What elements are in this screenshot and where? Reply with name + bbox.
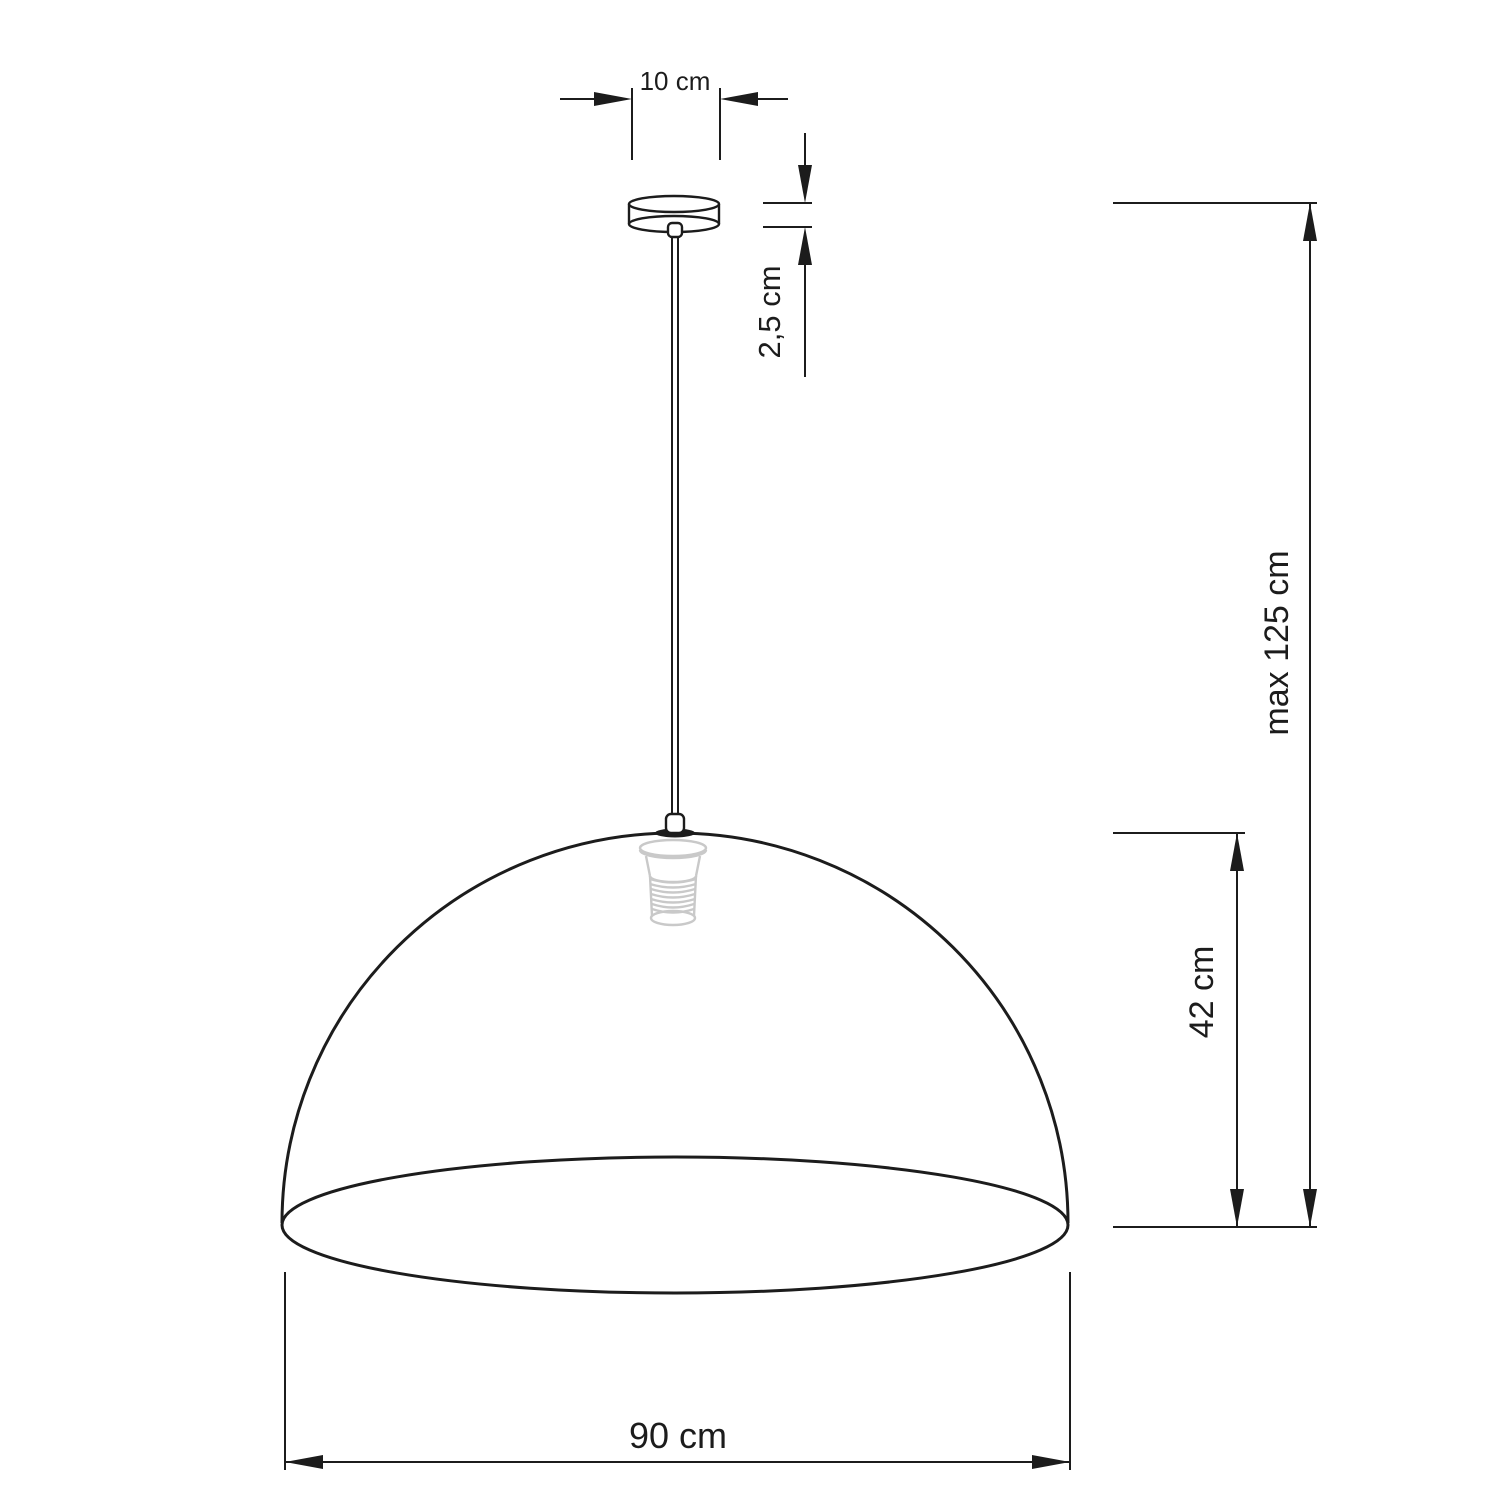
cable-fitting — [655, 814, 695, 838]
socket-neck-left — [646, 856, 650, 876]
arrowhead-up-icon — [1230, 833, 1244, 871]
max-height-label: max 125 cm — [1258, 550, 1296, 735]
strain-relief — [666, 814, 684, 833]
canopy-height-label: 2,5 cm — [752, 265, 787, 358]
drawing-canvas: 10 cm 2,5 cm max 125 cm 42 cm 90 cm — [0, 0, 1500, 1500]
canopy-cable-grip — [668, 223, 682, 237]
shade-rim-ellipse — [282, 1157, 1068, 1293]
canopy-top-ellipse — [629, 196, 719, 212]
dimension-canopy-height: 2,5 cm — [752, 133, 812, 377]
lamp-socket — [640, 840, 706, 925]
socket-thread — [652, 904, 694, 908]
dimension-max-height: max 125 cm — [1113, 203, 1317, 1227]
socket-thread — [650, 884, 696, 888]
socket-thread — [651, 899, 695, 903]
arrowhead-left-icon — [285, 1455, 323, 1469]
canopy-width-label: 10 cm — [640, 66, 711, 96]
shade-height-label: 42 cm — [1183, 946, 1221, 1039]
suspension-cable — [672, 237, 678, 816]
socket-neck-right — [696, 856, 700, 876]
socket-thread — [651, 894, 695, 898]
dimension-shade-diameter: 90 cm — [285, 1272, 1070, 1470]
arrowhead-down-icon — [1303, 1189, 1317, 1227]
arrowhead-down-icon — [1230, 1189, 1244, 1227]
socket-flange-top — [640, 840, 706, 856]
lamp-dimension-drawing: 10 cm 2,5 cm max 125 cm 42 cm 90 cm — [0, 0, 1500, 1500]
shade-diameter-label: 90 cm — [629, 1415, 727, 1456]
arrowhead-right-icon — [594, 92, 632, 106]
dimension-shade-height: 42 cm — [1113, 833, 1245, 1227]
ceiling-canopy — [629, 196, 719, 237]
arrowhead-left-icon — [720, 92, 758, 106]
arrowhead-right-icon — [1032, 1455, 1070, 1469]
socket-thread — [651, 889, 695, 893]
arrowhead-up-icon — [798, 227, 812, 265]
arrowhead-down-icon — [798, 165, 812, 203]
arrowhead-up-icon — [1303, 203, 1317, 241]
dimension-canopy-width: 10 cm — [560, 66, 788, 160]
